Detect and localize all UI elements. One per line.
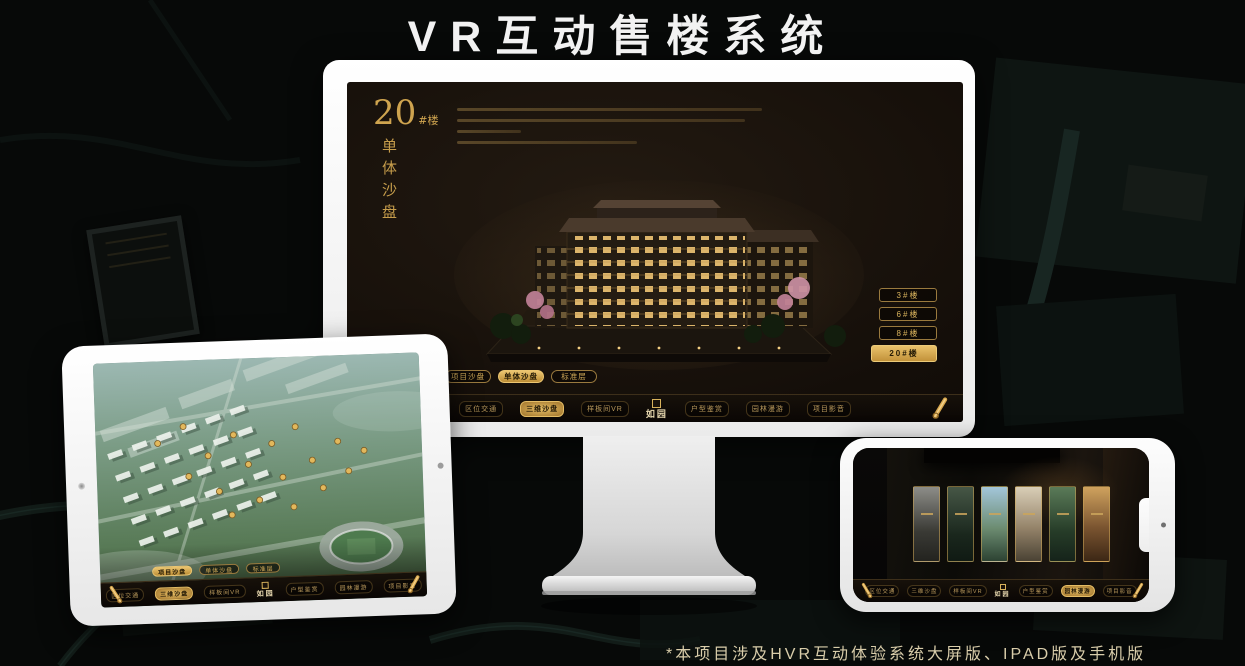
camera-icon — [1161, 523, 1166, 528]
nav-item-showroom-vr[interactable]: 样板间VR — [204, 584, 246, 598]
phone-frame: 区位交通 三维沙盘 样板间VR 如园 户型鉴赏 园林漫游 项目影音 — [840, 438, 1175, 612]
view-tab-group: 项目沙盘 单体沙盘 标准层 — [445, 370, 597, 383]
monitor-stand — [539, 436, 759, 618]
tablet-screen: 项目沙盘 单体沙盘 标准层 区位交通 三维沙盘 样板间VR 如园 户型鉴赏 园林 — [93, 352, 427, 607]
block-subtitle-vertical: 单体沙盘 — [379, 138, 400, 226]
panorama-card[interactable] — [947, 486, 974, 562]
scroll-icon[interactable] — [1132, 582, 1144, 599]
nav-item-floorplans[interactable]: 户型鉴赏 — [685, 401, 729, 417]
brand-logo[interactable]: 如园 — [646, 399, 668, 419]
seal-icon — [262, 582, 269, 589]
footnote-text: *本项目涉及HVR互动体验系统大屏版、IPAD版及手机版 — [666, 640, 1146, 664]
nav-item-showroom-vr[interactable]: 样板间VR — [949, 585, 986, 597]
poster: VR互动售楼系统 20#楼 单体沙盘 — [0, 0, 1245, 666]
nav-item-3d-sandtable[interactable]: 三维沙盘 — [907, 585, 941, 597]
seal-icon — [652, 399, 661, 408]
nav-item-garden-tour[interactable]: 园林漫游 — [334, 580, 372, 594]
building-button-group: 3#楼 6#楼 8#楼 20#楼 — [871, 288, 937, 362]
building-button-8[interactable]: 8#楼 — [879, 326, 937, 340]
brand-logo-text: 如园 — [646, 410, 668, 419]
nav-item-3d-sandtable[interactable]: 三维沙盘 — [520, 401, 564, 417]
panorama-card[interactable] — [1049, 486, 1076, 562]
notch — [1139, 498, 1149, 552]
building-button-20[interactable]: 20#楼 — [871, 345, 937, 362]
tab-single-sandtable[interactable]: 单体沙盘 — [498, 370, 544, 383]
home-button[interactable] — [437, 462, 443, 468]
block-number-text: 20 — [373, 93, 416, 133]
block-number-suffix: #楼 — [418, 114, 438, 127]
main-nav-bar: 区位交通 三维沙盘 样板间VR 如园 户型鉴赏 园林漫游 项目影音 — [853, 579, 1149, 602]
brand-logo-text: 如园 — [995, 592, 1011, 598]
tab-project-sandtable[interactable]: 项目沙盘 — [445, 370, 491, 383]
nav-item-garden-tour[interactable]: 园林漫游 — [746, 401, 790, 417]
nav-item-garden-tour[interactable]: 园林漫游 — [1061, 585, 1095, 597]
panorama-card[interactable] — [1015, 486, 1042, 562]
seal-icon — [1000, 584, 1006, 590]
scroll-icon[interactable] — [931, 397, 949, 419]
brand-logo[interactable]: 如园 — [256, 582, 275, 599]
nav-item-showroom-vr[interactable]: 样板间VR — [581, 401, 629, 417]
phone-mockup: 区位交通 三维沙盘 样板间VR 如园 户型鉴赏 园林漫游 项目影音 — [840, 438, 1175, 612]
building-button-3[interactable]: 3#楼 — [879, 288, 937, 302]
panorama-card-strip — [913, 486, 1110, 562]
panorama-card[interactable] — [981, 486, 1008, 562]
building-render[interactable] — [447, 140, 877, 375]
brand-logo-text: 如园 — [257, 591, 275, 599]
camera-icon — [78, 483, 85, 490]
scroll-icon[interactable] — [109, 585, 124, 604]
nav-item-project-video[interactable]: 项目影音 — [807, 401, 851, 417]
brand-logo[interactable]: 如园 — [995, 584, 1011, 598]
tab-single-sandtable[interactable]: 单体沙盘 — [199, 564, 239, 575]
nav-item-floorplans[interactable]: 户型鉴赏 — [1019, 585, 1053, 597]
panorama-card[interactable] — [913, 486, 940, 562]
block-heading: 20#楼 单体沙盘 — [373, 96, 438, 226]
page-title: VR互动售楼系统 — [0, 2, 1245, 64]
nav-item-location[interactable]: 区位交通 — [459, 401, 503, 417]
block-number: 20#楼 — [373, 96, 438, 130]
building-button-6[interactable]: 6#楼 — [879, 307, 937, 321]
tablet-frame: 项目沙盘 单体沙盘 标准层 区位交通 三维沙盘 样板间VR 如园 户型鉴赏 园林 — [61, 333, 457, 626]
scroll-icon[interactable] — [406, 574, 421, 593]
tab-standard-floor[interactable]: 标准层 — [246, 562, 280, 573]
tab-standard-floor[interactable]: 标准层 — [551, 370, 597, 383]
background-photo-frame — [86, 215, 200, 349]
tablet-mockup: 项目沙盘 单体沙盘 标准层 区位交通 三维沙盘 样板间VR 如园 户型鉴赏 园林 — [61, 333, 457, 626]
tab-project-sandtable[interactable]: 项目沙盘 — [152, 565, 192, 576]
scroll-icon[interactable] — [861, 582, 873, 599]
nav-item-3d-sandtable[interactable]: 三维沙盘 — [155, 586, 193, 600]
phone-screen: 区位交通 三维沙盘 样板间VR 如园 户型鉴赏 园林漫游 项目影音 — [853, 448, 1149, 602]
panorama-card[interactable] — [1083, 486, 1110, 562]
nav-item-floorplans[interactable]: 户型鉴赏 — [285, 581, 323, 595]
